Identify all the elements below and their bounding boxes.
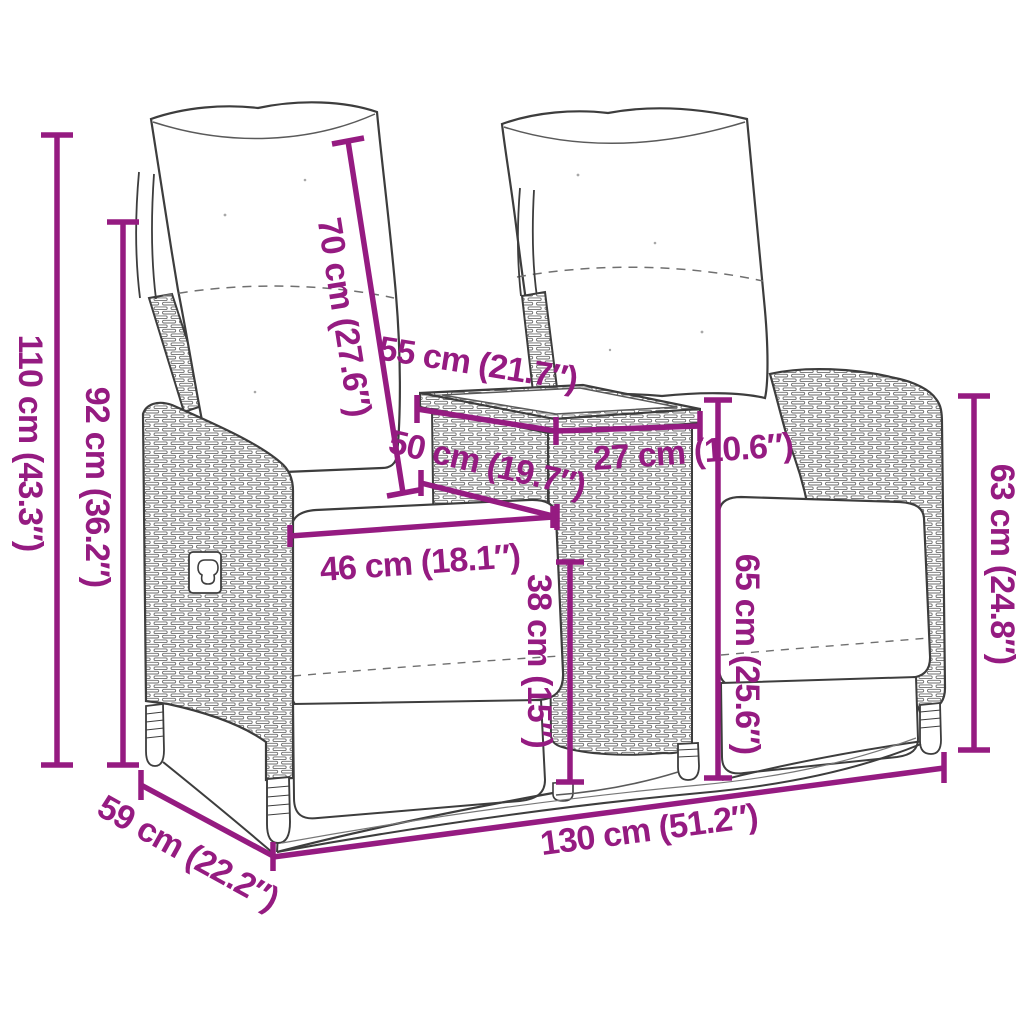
table-foot bbox=[678, 743, 699, 780]
dimension-59cm: 59 cm (22.2″) bbox=[91, 770, 285, 918]
dimension-63cm-label: 63 cm (24.8″) bbox=[983, 464, 1021, 665]
dimension-63cm: 63 cm (24.8″) bbox=[958, 396, 1021, 750]
dimension-diagram-canvas: 110 cm (43.3″) 92 cm (36.2″) 70 cm (27.6… bbox=[0, 0, 1024, 1024]
dimension-38cm-label: 38 cm (15″) bbox=[520, 574, 558, 748]
left-seat-foot bbox=[553, 782, 573, 801]
dimension-92cm: 92 cm (36.2″) bbox=[78, 222, 139, 765]
sofa-dimension-diagram: 110 cm (43.3″) 92 cm (36.2″) 70 cm (27.6… bbox=[0, 0, 1024, 1024]
left-cushion-strap bbox=[136, 172, 156, 299]
left-armrest bbox=[143, 403, 293, 780]
dimension-110cm: 110 cm (43.3″) bbox=[11, 135, 73, 765]
dimension-65cm-label: 65 cm (25.6″) bbox=[728, 554, 766, 755]
dimension-110cm-label: 110 cm (43.3″) bbox=[11, 335, 49, 552]
dimension-92cm-label: 92 cm (36.2″) bbox=[78, 387, 116, 588]
